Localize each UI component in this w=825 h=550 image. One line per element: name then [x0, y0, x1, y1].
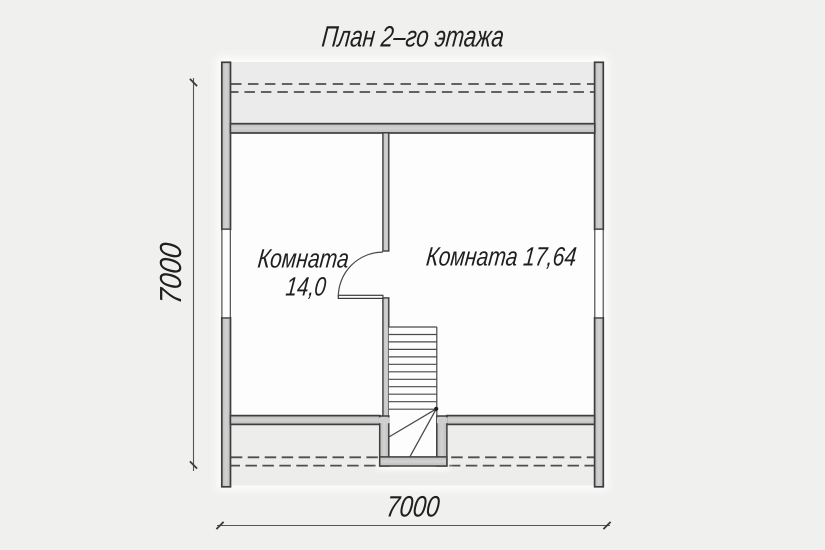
svg-text:Комната: Комната: [256, 244, 350, 274]
svg-text:План 2–го этажа: План 2–го этажа: [320, 21, 505, 54]
svg-text:Комната 17,64: Комната 17,64: [425, 242, 578, 272]
svg-text:7000: 7000: [154, 241, 188, 306]
svg-text:14,0: 14,0: [284, 272, 327, 302]
svg-text:7000: 7000: [385, 491, 442, 524]
